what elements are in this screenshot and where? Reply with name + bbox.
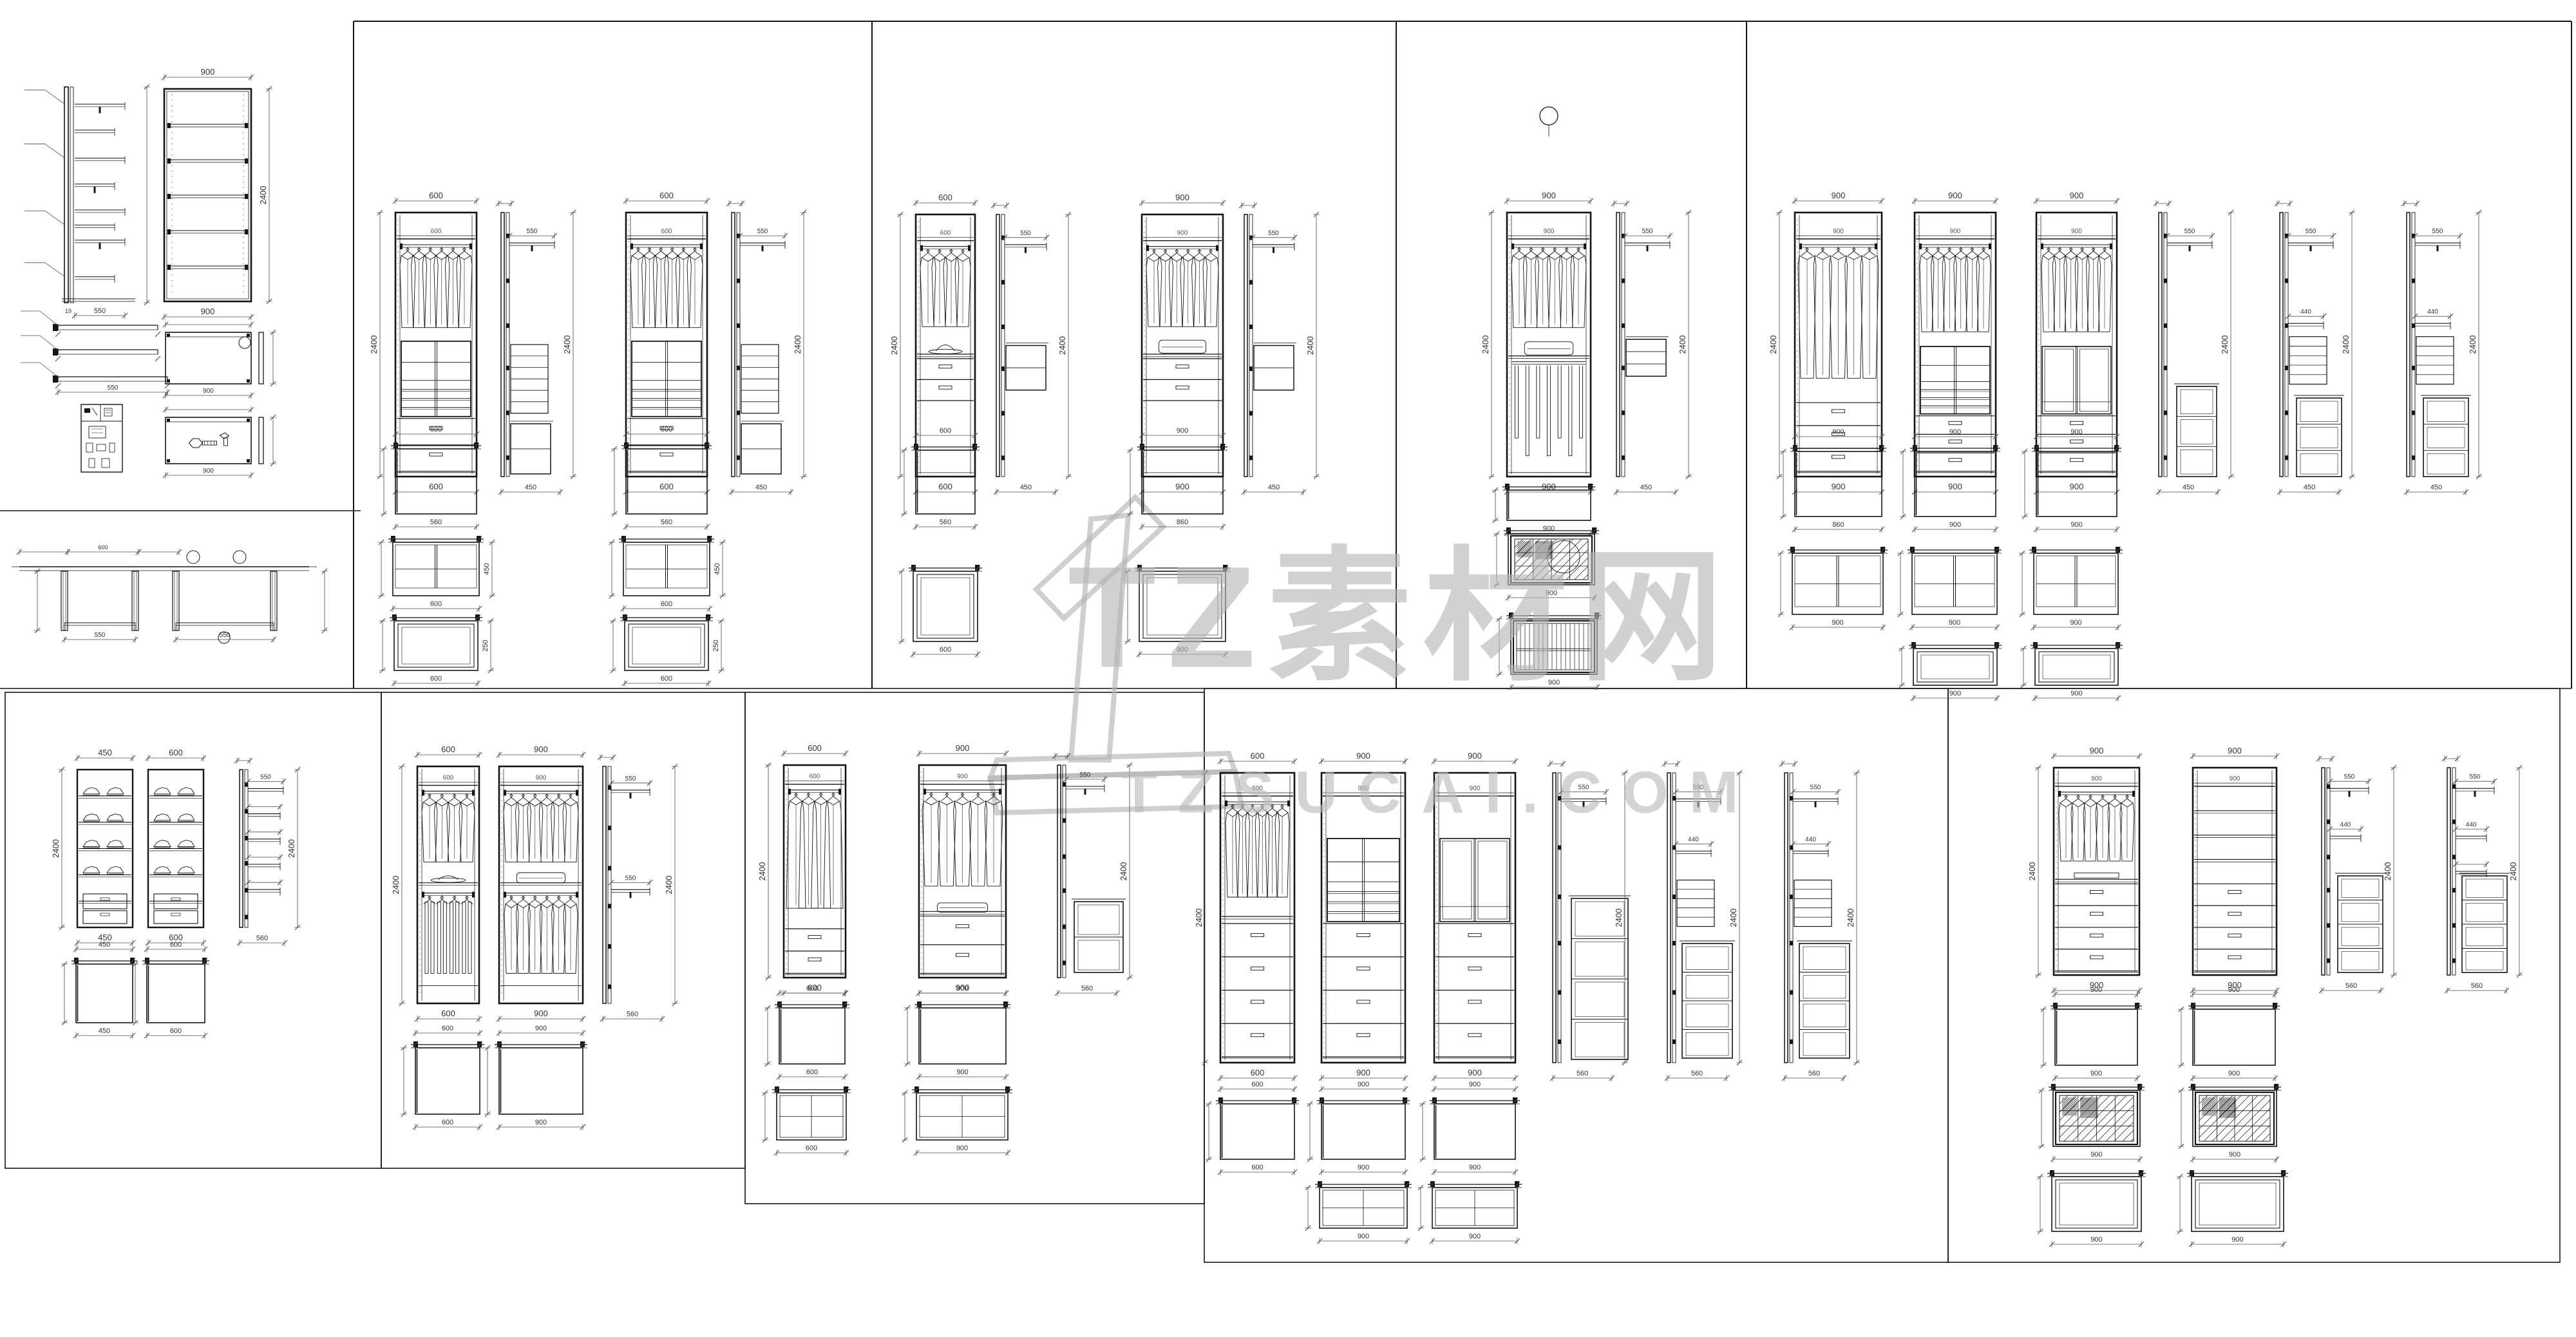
wardrobe-side-section: 5504402400560 [1779,761,1860,1081]
svg-text:2400: 2400 [1481,336,1490,354]
svg-text:900: 900 [203,388,214,395]
plan-view-plain: 900900 [1419,1081,1520,1175]
svg-text:900: 900 [1175,482,1189,491]
svg-text:600: 600 [1251,1081,1263,1088]
svg-text:600: 600 [431,228,442,235]
plan-view-framed: 900 [2020,642,2123,701]
svg-text:900: 900 [2090,1236,2102,1244]
svg-text:900: 900 [2070,482,2084,491]
wardrobe-elevation: 600600600 [623,191,710,495]
svg-text:600: 600 [808,743,822,753]
panel-detail: 900 [163,321,276,399]
svg-text:900: 900 [1949,690,1961,697]
svg-text:450: 450 [2183,484,2194,491]
svg-text:900: 900 [201,67,215,77]
svg-text:440: 440 [2300,308,2311,316]
svg-text:600: 600 [938,193,952,202]
svg-text:2400: 2400 [2027,862,2037,881]
svg-text:2400: 2400 [1846,909,1855,927]
wardrobe-side-section: 5502400450 [991,202,1072,495]
svg-text:600: 600 [1251,1068,1265,1077]
svg-text:2400: 2400 [391,876,401,895]
svg-text:600: 600 [441,1009,455,1018]
svg-text:560: 560 [627,1010,638,1018]
plan-view-plain: 450450 [61,941,137,1039]
svg-text:600: 600 [661,600,672,608]
svg-text:900: 900 [2090,746,2104,755]
svg-text:550: 550 [1810,784,1821,792]
svg-text:900: 900 [1949,619,1960,627]
svg-text:2400: 2400 [258,186,268,205]
svg-text:560: 560 [1691,1070,1703,1077]
plan-view-framed: 900 [2177,1170,2288,1247]
svg-text:550: 550 [1642,228,1653,235]
wardrobe-elevation: 900900900 [916,743,1009,996]
svg-text:600: 600 [169,748,183,757]
svg-text:900: 900 [1832,482,1846,491]
svg-text:550: 550 [2306,228,2316,235]
svg-text:600: 600 [430,675,442,683]
svg-text:600: 600 [938,482,952,491]
svg-text:900: 900 [1833,228,1844,235]
plan-view-plain: 900860 [1780,428,1886,533]
svg-text:900: 900 [1949,428,1961,436]
svg-text:560: 560 [661,518,672,526]
svg-text:2400: 2400 [1614,909,1624,927]
svg-text:900: 900 [1469,1081,1481,1088]
shoe-cabinet-elevation: 600600 [146,748,206,946]
plan-view-divided: 600450 [378,536,495,612]
svg-text:900: 900 [1542,191,1556,200]
svg-text:600: 600 [806,985,818,992]
svg-text:600: 600 [441,744,455,754]
wardrobe-elevation: 9009009002400 [1481,191,1593,495]
svg-text:600: 600 [810,773,820,781]
plan-view-cross: 900 [902,1086,1012,1156]
plan-view-framed: 600250 [610,614,724,687]
svg-text:450: 450 [99,1027,110,1035]
svg-text:560: 560 [2471,982,2483,990]
plan-view-divided: 900 [2019,547,2123,631]
wardrobe-elevation: 6006006002400 [391,744,482,1022]
svg-text:900: 900 [1358,1081,1369,1088]
svg-text:2400: 2400 [1305,336,1315,355]
svg-text:900: 900 [201,307,215,316]
plan-view-plain: 900900 [2040,986,2142,1081]
plan-view-plain: 600600 [1206,1081,1299,1175]
svg-text:560: 560 [256,934,268,942]
svg-text:900: 900 [2228,986,2240,994]
svg-text:450: 450 [1640,484,1652,491]
svg-text:560: 560 [940,518,951,526]
svg-text:600: 600 [940,230,951,237]
svg-text:900: 900 [956,1144,968,1152]
plan-view-divided: 600450 [609,536,726,612]
svg-text:900: 900 [2091,775,2102,782]
svg-text:900: 900 [1544,228,1555,235]
shelf-profile-details: 550 [21,311,170,395]
svg-text:450: 450 [98,748,112,757]
shoe-cabinet-elevation: 4504502400 [51,748,135,946]
svg-text:2400: 2400 [562,336,572,354]
svg-text:450: 450 [2304,484,2315,491]
plan-view-plain: 900900 [1307,1081,1410,1175]
svg-text:2400: 2400 [2383,862,2392,881]
svg-text:2400: 2400 [757,862,767,881]
svg-text:440: 440 [1805,837,1816,844]
plan-view-plain: 600600 [132,941,209,1039]
svg-text:600: 600 [98,544,108,551]
svg-text:900: 900 [2070,619,2081,627]
plan-view-framed: 900 [2037,1170,2146,1247]
svg-text:900: 900 [2231,1236,2243,1244]
svg-text:2400: 2400 [793,336,802,354]
svg-text:900: 900 [1832,191,1846,200]
svg-text:550: 550 [260,773,271,781]
svg-text:550: 550 [95,632,106,639]
svg-text:440: 440 [1688,837,1699,844]
svg-text:900: 900 [1832,619,1843,627]
svg-text:600: 600 [940,427,951,435]
wardrobe-side-section: 5502400450 [1239,202,1320,495]
svg-text:900: 900 [956,985,968,992]
svg-text:900: 900 [1356,1068,1370,1077]
svg-text:440: 440 [2466,821,2477,828]
plan-view-plain: 900900 [904,985,1010,1080]
wardrobe-elevation: 9009009002400 [2027,746,2142,994]
svg-text:600: 600 [659,482,674,491]
wardrobe-side-section: 5504402400450 [2401,200,2482,495]
wardrobe-side-section: 5504402400450 [2275,200,2355,495]
svg-text:900: 900 [956,1068,968,1076]
svg-text:900: 900 [1358,1233,1369,1240]
svg-text:900: 900 [2090,986,2102,994]
svg-text:900: 900 [1175,193,1189,202]
svg-text:600: 600 [170,1027,182,1035]
svg-text:900: 900 [1177,427,1188,435]
plan-view-plain: 900900 [484,1025,587,1130]
svg-text:900: 900 [956,743,970,753]
svg-text:450: 450 [2430,484,2442,491]
detail-balloon [1540,107,1558,137]
svg-text:900: 900 [2070,191,2084,200]
svg-text:560: 560 [1808,1070,1820,1077]
svg-text:900: 900 [1950,228,1961,235]
svg-text:600: 600 [429,482,443,491]
svg-text:2400: 2400 [2341,336,2351,354]
svg-text:19: 19 [65,308,71,314]
hardware-legend-box [81,404,122,472]
svg-text:560: 560 [1577,1070,1588,1077]
svg-text:550: 550 [2344,773,2355,781]
svg-text:900: 900 [534,1009,548,1018]
svg-text:600: 600 [1251,1164,1263,1171]
plan-view-framed: 600250 [379,614,494,687]
svg-text:600: 600 [170,941,182,949]
watermark-en: TZSUCAI.COM [1121,759,1759,827]
svg-text:900: 900 [1832,428,1844,436]
watermark-cn: TZ素材网 [1068,500,1735,709]
svg-text:2400: 2400 [2508,862,2518,881]
svg-text:2400: 2400 [1678,336,1687,354]
svg-text:560: 560 [430,518,442,526]
wardrobe-elevation: 9009009002400 [1768,191,1884,495]
svg-text:2400: 2400 [1768,336,1778,354]
svg-text:450: 450 [1268,484,1280,491]
svg-text:900: 900 [1469,1233,1481,1240]
svg-text:550: 550 [1080,772,1091,779]
bench-plan-section: 600550550 [12,544,328,643]
svg-text:550: 550 [527,228,538,235]
svg-text:860: 860 [1832,521,1844,529]
svg-text:900: 900 [2228,746,2242,755]
svg-text:600: 600 [430,426,442,433]
wardrobe-elevation: 900900900 [2034,191,2119,495]
svg-text:450: 450 [525,484,536,491]
wardrobe-side-section: 5504402400560 [2442,755,2523,994]
svg-text:250: 250 [712,640,720,651]
svg-text:550: 550 [108,384,118,392]
svg-text:550: 550 [2432,228,2443,235]
plan-view-framed: 900 [1899,642,2002,701]
svg-text:2400: 2400 [1194,909,1204,927]
wardrobe-side-section: 5502400450 [1611,200,1692,495]
svg-text:550: 550 [1268,230,1279,237]
svg-text:600: 600 [806,1144,817,1152]
svg-text:450: 450 [755,484,767,491]
svg-text:550: 550 [757,228,768,235]
plan-view-divided: 900 [1777,547,1888,631]
svg-text:900: 900 [2090,1151,2102,1159]
svg-text:900: 900 [1949,521,1961,529]
cad-sheet: 5501990024009005509009006005505506006006… [0,0,2576,1337]
svg-text:2400: 2400 [2468,336,2477,354]
shelf-unit-front-elevation: 9002400900 [162,67,272,320]
svg-text:440: 440 [2427,308,2438,316]
svg-text:900: 900 [534,744,548,754]
svg-text:440: 440 [2340,821,2351,828]
wardrobe-side-section: 5502400450 [2154,200,2234,495]
plan-view-plain: 600560 [901,427,980,530]
svg-text:2400: 2400 [1057,336,1067,355]
svg-text:900: 900 [536,774,547,781]
svg-text:2400: 2400 [369,336,379,354]
svg-text:900: 900 [1358,1164,1369,1171]
plan-view-framed: 600 [898,565,982,658]
svg-text:600: 600 [442,1119,453,1126]
plan-view-cross: 900 [1305,1181,1412,1244]
svg-text:600: 600 [940,646,951,654]
panel-detail-with-fittings: 900 [163,406,276,479]
svg-text:560: 560 [2345,982,2357,990]
svg-text:900: 900 [2090,1070,2102,1077]
plan-view-plain: 600600 [764,985,849,1080]
svg-text:550: 550 [94,307,106,315]
svg-text:2400: 2400 [1119,862,1128,881]
shelf-unit-side-section: 55019 [24,84,150,319]
svg-text:550: 550 [625,775,636,782]
plan-view-plain: 900900 [2178,986,2280,1081]
svg-text:900: 900 [1469,1164,1481,1171]
svg-text:900: 900 [957,773,968,781]
svg-text:250: 250 [482,640,489,651]
svg-text:560: 560 [1081,985,1093,992]
svg-text:900: 900 [535,1119,547,1126]
svg-text:550: 550 [1020,230,1031,237]
svg-text:900: 900 [2229,1151,2240,1159]
wardrobe-elevation: 900900900 [1912,191,1998,495]
plan-view-cross: 900 [1417,1181,1522,1244]
svg-text:900: 900 [2228,1070,2240,1077]
wardrobe-elevation: 900900900 [2190,746,2279,994]
svg-text:600: 600 [443,774,454,781]
svg-text:600: 600 [661,675,672,683]
svg-text:600: 600 [430,600,442,608]
svg-text:2400: 2400 [2220,336,2230,354]
svg-text:2400: 2400 [287,839,296,858]
svg-text:550: 550 [2470,773,2481,781]
wardrobe-elevation: 900900900 [497,744,585,1022]
svg-text:900: 900 [1177,230,1188,237]
plan-view-plain: 600600 [401,1025,484,1130]
svg-text:900: 900 [1948,482,1962,491]
wardrobe-side-section: 5502400450 [496,200,576,495]
svg-text:450: 450 [714,563,721,574]
svg-text:900: 900 [1948,191,1962,200]
plan-view-divided: 900 [1897,547,2002,631]
svg-text:900: 900 [535,1025,547,1032]
wardrobe-side-section: 5502400450 [726,200,807,495]
svg-text:900: 900 [2070,690,2082,697]
svg-text:900: 900 [203,468,214,475]
wardrobe-elevation: 6006006002400 [369,191,479,495]
svg-text:2400: 2400 [51,839,61,858]
svg-text:600: 600 [806,1068,818,1076]
plan-view-hatchgrid: 900 [2014,1084,2219,1162]
svg-text:550: 550 [625,875,636,882]
svg-text:450: 450 [483,563,491,574]
svg-text:2400: 2400 [1728,909,1738,927]
svg-text:550: 550 [2184,228,2195,235]
plan-view-hatchgrid: 900 [2154,1084,2358,1162]
svg-text:450: 450 [99,941,110,949]
svg-text:600: 600 [442,1025,453,1032]
svg-text:900: 900 [2230,775,2240,782]
svg-text:2400: 2400 [664,876,674,895]
svg-text:600: 600 [661,426,672,433]
svg-text:2400: 2400 [889,336,899,355]
svg-text:600: 600 [659,191,674,200]
svg-text:600: 600 [429,191,443,200]
svg-text:900: 900 [2071,228,2082,235]
svg-text:900: 900 [2070,521,2082,529]
wardrobe-side-section: 5504402400560 [2316,755,2397,994]
svg-text:900: 900 [2070,428,2082,436]
svg-text:600: 600 [661,228,672,235]
svg-text:900: 900 [1468,1068,1482,1077]
plan-view-cross: 600 [762,1086,851,1156]
svg-text:450: 450 [1020,484,1032,491]
wardrobe-side-section: 5505502400560 [598,754,678,1022]
wardrobe-elevation: 6006006002400 [757,743,848,996]
wardrobe-side-section: 5502400560 [234,757,301,946]
